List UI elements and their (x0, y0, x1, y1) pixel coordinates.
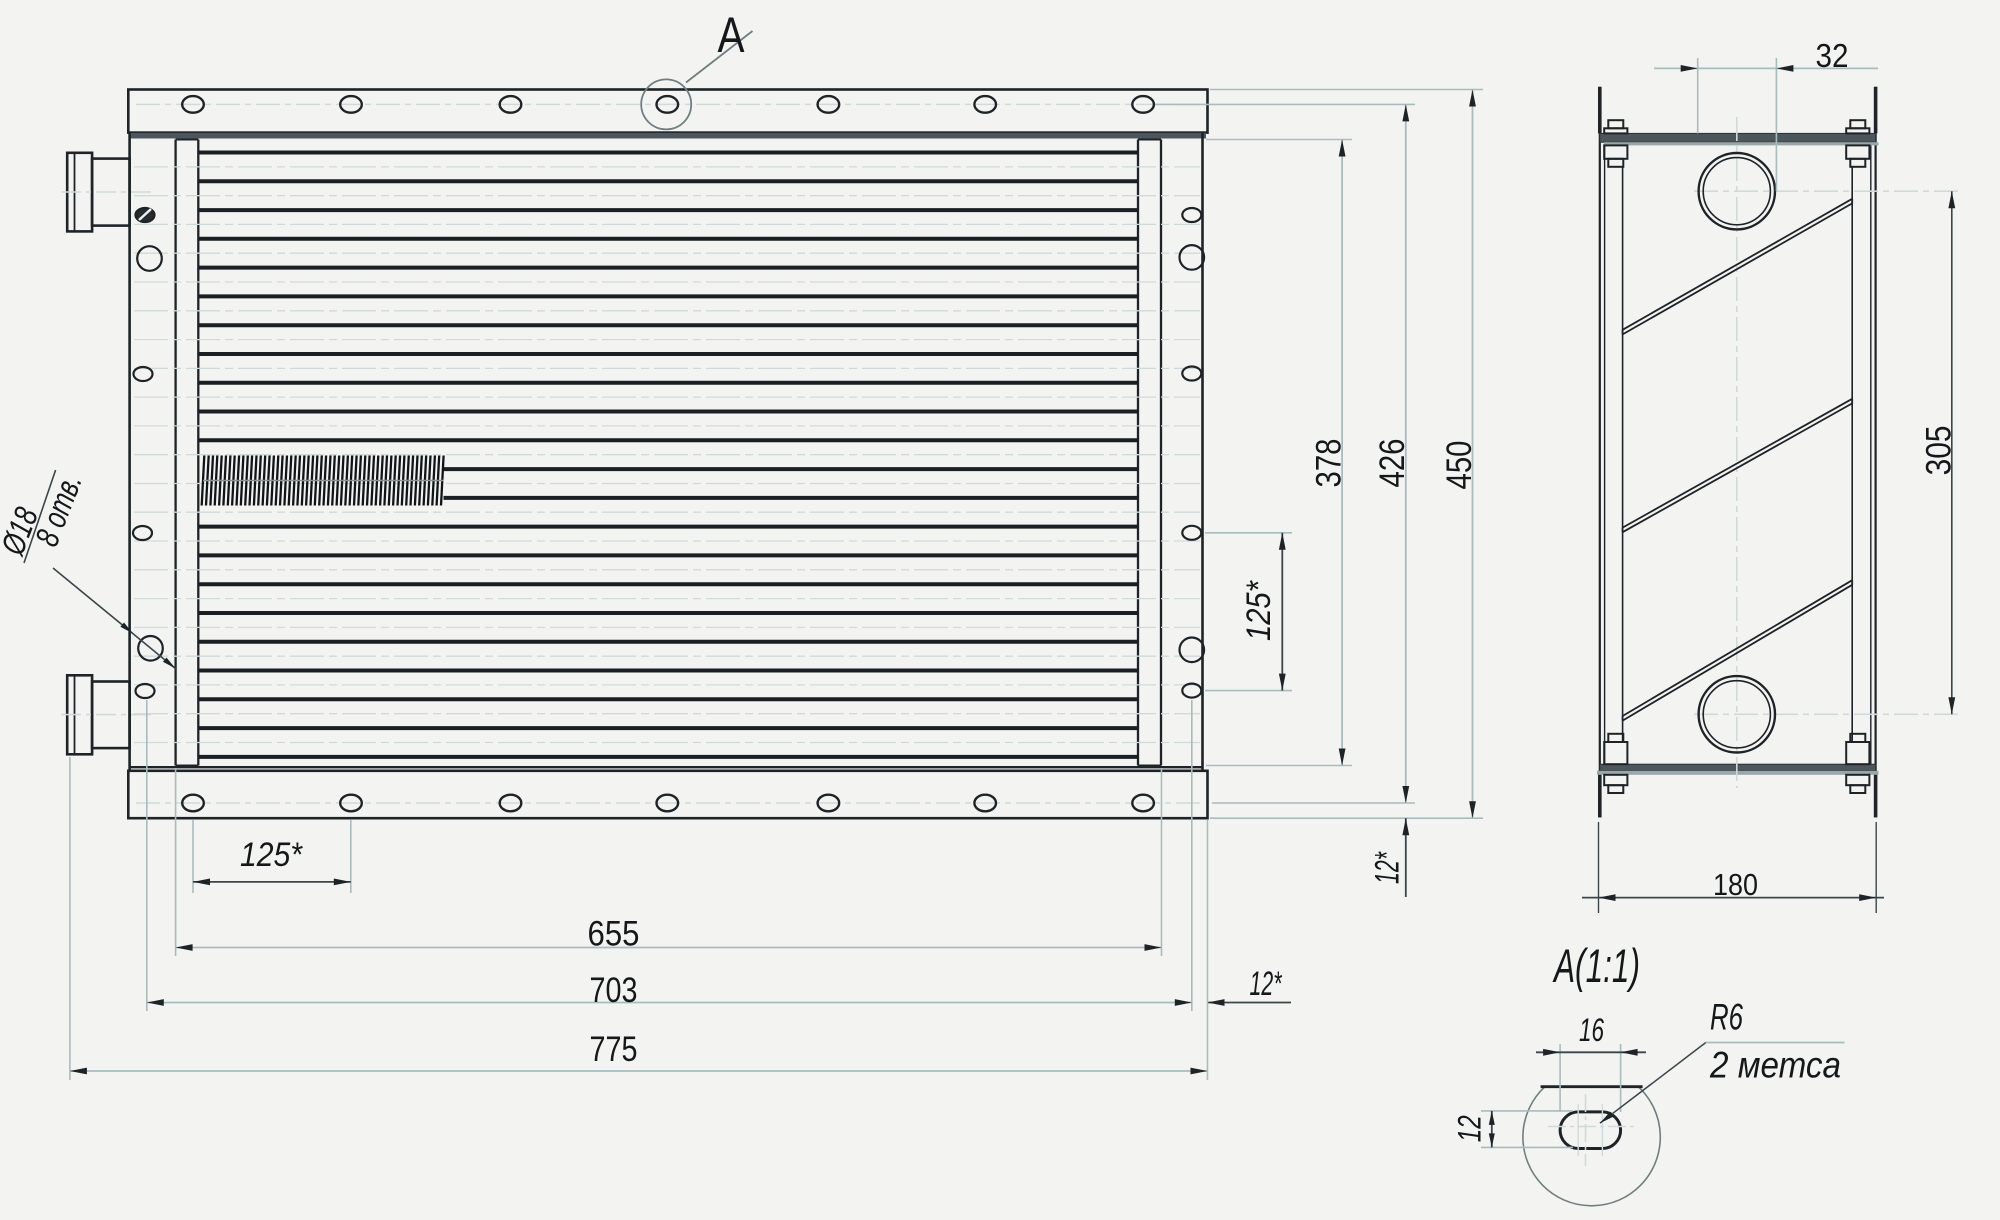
svg-text:32: 32 (1816, 37, 1849, 74)
svg-text:378: 378 (1310, 439, 1349, 488)
svg-text:16: 16 (1579, 1012, 1604, 1048)
svg-text:775: 775 (590, 1030, 638, 1069)
svg-text:180: 180 (1713, 867, 1758, 902)
svg-text:R6: R6 (1710, 997, 1743, 1038)
svg-text:426: 426 (1373, 439, 1412, 488)
svg-text:125*: 125* (1240, 579, 1278, 641)
svg-text:A: A (718, 7, 746, 63)
svg-text:450: 450 (1440, 441, 1479, 490)
svg-text:655: 655 (588, 915, 640, 954)
svg-text:12: 12 (1452, 1115, 1488, 1142)
svg-text:12*: 12* (1369, 851, 1407, 884)
svg-text:8 отв.: 8 отв. (28, 469, 89, 551)
svg-text:2 метса: 2 метса (1709, 1045, 1841, 1086)
svg-text:703: 703 (590, 971, 638, 1010)
svg-text:12*: 12* (1250, 965, 1283, 1003)
svg-text:125*: 125* (240, 836, 304, 874)
svg-text:A(1:1): A(1:1) (1552, 939, 1640, 992)
svg-text:305: 305 (1920, 425, 1959, 475)
